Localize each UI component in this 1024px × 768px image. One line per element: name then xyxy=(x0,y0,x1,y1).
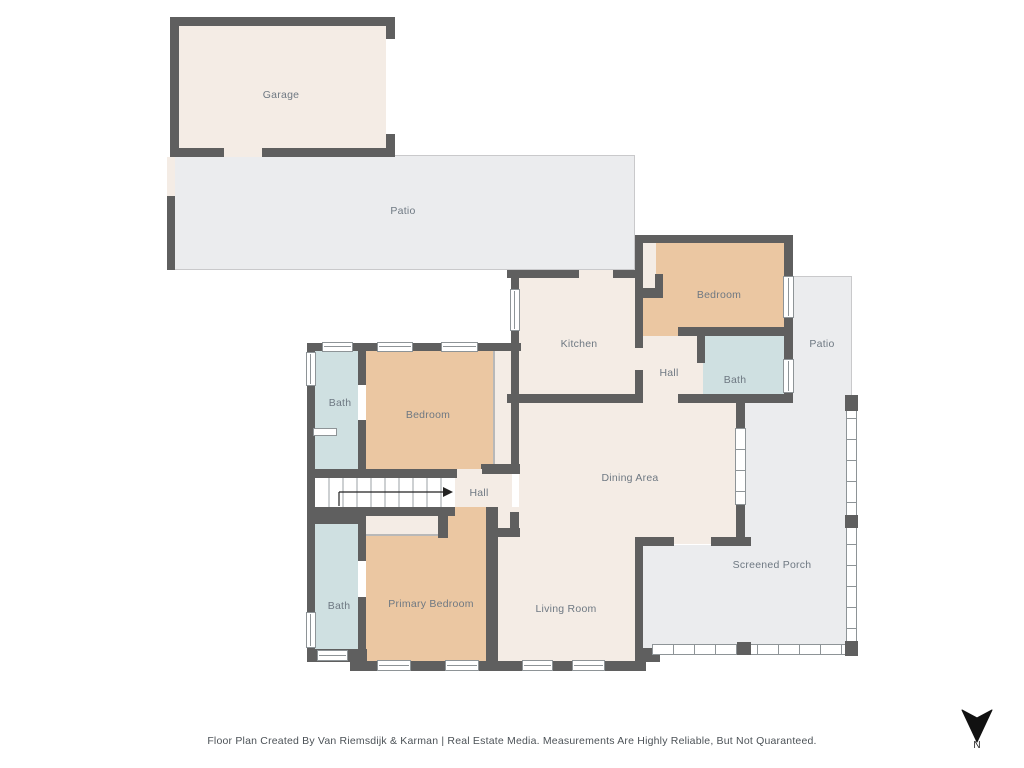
room-screened-porch-bottom xyxy=(643,545,745,650)
wall-kitchen-bottom xyxy=(507,394,643,403)
floor-plan: Garage Patio Kitchen Bedroom Hall Bath P… xyxy=(0,0,1024,768)
wall-bedroom-ml-bottom xyxy=(307,469,458,478)
room-bath-top-right xyxy=(703,336,784,395)
door-garage-patio xyxy=(224,148,262,157)
window-bath-bl-bottom xyxy=(317,650,348,661)
wall-hall-bath-divider xyxy=(697,336,705,363)
room-bath-bottom-left xyxy=(315,523,358,650)
closet-primary-line xyxy=(362,534,446,536)
patio-right-top-edge xyxy=(792,276,852,277)
porch-post-corner xyxy=(845,641,858,656)
window-living-bottom-2 xyxy=(572,660,605,671)
room-label-living-room: Living Room xyxy=(535,603,596,615)
footer-disclaimer: Floor Plan Created By Van Riemsdijk & Ka… xyxy=(0,735,1024,747)
porch-post-mid-right xyxy=(845,515,858,528)
window-primary-bottom-2 xyxy=(445,660,479,671)
opening-patio-left xyxy=(167,157,175,196)
room-label-patio-right: Patio xyxy=(809,338,834,350)
room-label-dining-area: Dining Area xyxy=(601,472,658,484)
closet-bedroom-mid-left xyxy=(495,351,512,470)
room-label-kitchen: Kitchen xyxy=(561,338,598,350)
opening-hall-dining xyxy=(643,394,678,403)
wall-dining-bottom-right xyxy=(711,537,751,546)
wall-living-entry-horiz xyxy=(497,528,520,537)
window-dining-right xyxy=(735,428,746,505)
wall-garage-left xyxy=(170,17,179,157)
door-bedroom-ml-hall xyxy=(457,469,482,478)
window-bedroom-tr-right xyxy=(783,276,794,318)
room-label-screened-porch: Screened Porch xyxy=(733,559,812,571)
wall-closet-tr-horiz xyxy=(637,288,663,298)
door-bath-bl xyxy=(358,561,366,597)
wall-bedroom-tr-top xyxy=(635,235,793,243)
window-bedroom-ml-top-1 xyxy=(377,342,413,352)
porch-post-mid-bottom xyxy=(737,642,751,655)
wall-closet-primary-stub xyxy=(438,507,448,538)
stairs xyxy=(315,478,455,507)
room-label-bath-tr: Bath xyxy=(724,374,747,386)
wall-garage-bottom-right xyxy=(262,148,391,157)
window-bath-bl-left xyxy=(306,612,316,648)
wall-porch-left xyxy=(635,537,643,652)
door-hall-primary xyxy=(455,507,486,517)
door-kitchen-hall xyxy=(635,348,643,370)
room-label-bedroom-tr: Bedroom xyxy=(697,289,741,301)
room-label-patio-top: Patio xyxy=(390,205,415,217)
room-hall-top-right xyxy=(643,336,703,395)
stairs-direction-arrow xyxy=(443,487,453,497)
bath-ml-fixture xyxy=(313,428,337,436)
window-bath-ml-top xyxy=(322,342,353,352)
wall-dining-right-upper xyxy=(736,403,745,429)
wall-bedroom-tr-bottom xyxy=(678,327,793,336)
room-label-hall-tr: Hall xyxy=(659,367,678,379)
door-bath-ml xyxy=(358,385,366,420)
window-kitchen-left xyxy=(510,289,520,331)
door-kitchen-patio xyxy=(579,270,613,278)
room-bath-mid-left xyxy=(315,351,358,470)
room-label-bath-ml: Bath xyxy=(329,397,352,409)
room-screened-porch-right xyxy=(745,397,852,650)
wall-living-entry-vert xyxy=(510,512,519,529)
wall-kitchen-right-lower xyxy=(635,370,643,403)
window-bath-ml-left xyxy=(306,352,316,386)
room-label-bedroom-ml: Bedroom xyxy=(406,409,450,421)
wall-garage-right-upper xyxy=(386,17,395,39)
wall-hall-center-top xyxy=(481,464,520,474)
room-label-garage: Garage xyxy=(263,89,300,101)
window-primary-bottom-1 xyxy=(377,660,411,671)
window-bath-tr-right xyxy=(783,359,794,393)
closet-mid-left-line xyxy=(493,351,495,470)
patio-right-side-edge xyxy=(851,276,852,397)
room-kitchen xyxy=(519,278,637,396)
window-bedroom-ml-top-2 xyxy=(441,342,478,352)
wall-garage-top xyxy=(170,17,395,26)
room-label-hall-center: Hall xyxy=(469,487,488,499)
window-living-bottom-1 xyxy=(522,660,553,671)
room-label-bath-bl: Bath xyxy=(328,600,351,612)
room-garage xyxy=(179,26,386,148)
room-label-primary-bedroom: Primary Bedroom xyxy=(388,598,473,610)
porch-post-top-right xyxy=(845,395,858,411)
room-primary-bedroom xyxy=(366,516,486,662)
wall-garage-bottom-left xyxy=(170,148,224,157)
wall-bath-tr-bottom xyxy=(678,394,793,403)
wall-patio-left xyxy=(167,196,175,270)
closet-primary-bedroom xyxy=(362,516,445,536)
room-patio-right xyxy=(792,276,852,397)
